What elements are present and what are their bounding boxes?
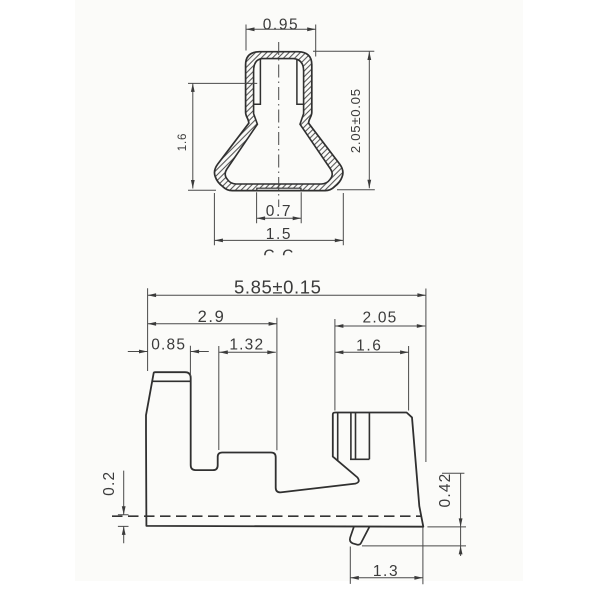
svg-text:1.5: 1.5 <box>266 226 292 243</box>
svg-text:0.42: 0.42 <box>437 473 454 508</box>
svg-text:2.05: 2.05 <box>363 309 398 326</box>
svg-text:1.3: 1.3 <box>373 563 399 580</box>
svg-text:5.85±0.15: 5.85±0.15 <box>234 277 322 298</box>
svg-text:1.6: 1.6 <box>177 133 189 151</box>
svg-text:0.85: 0.85 <box>151 336 186 353</box>
svg-text:0.95: 0.95 <box>263 17 300 34</box>
svg-text:0.7: 0.7 <box>266 203 292 220</box>
svg-text:2.05±0.05: 2.05±0.05 <box>348 88 363 153</box>
svg-text:1.32: 1.32 <box>229 336 264 353</box>
svg-text:2.9: 2.9 <box>198 308 226 326</box>
svg-text:0.2: 0.2 <box>101 471 118 496</box>
svg-text:1.6: 1.6 <box>356 337 382 354</box>
